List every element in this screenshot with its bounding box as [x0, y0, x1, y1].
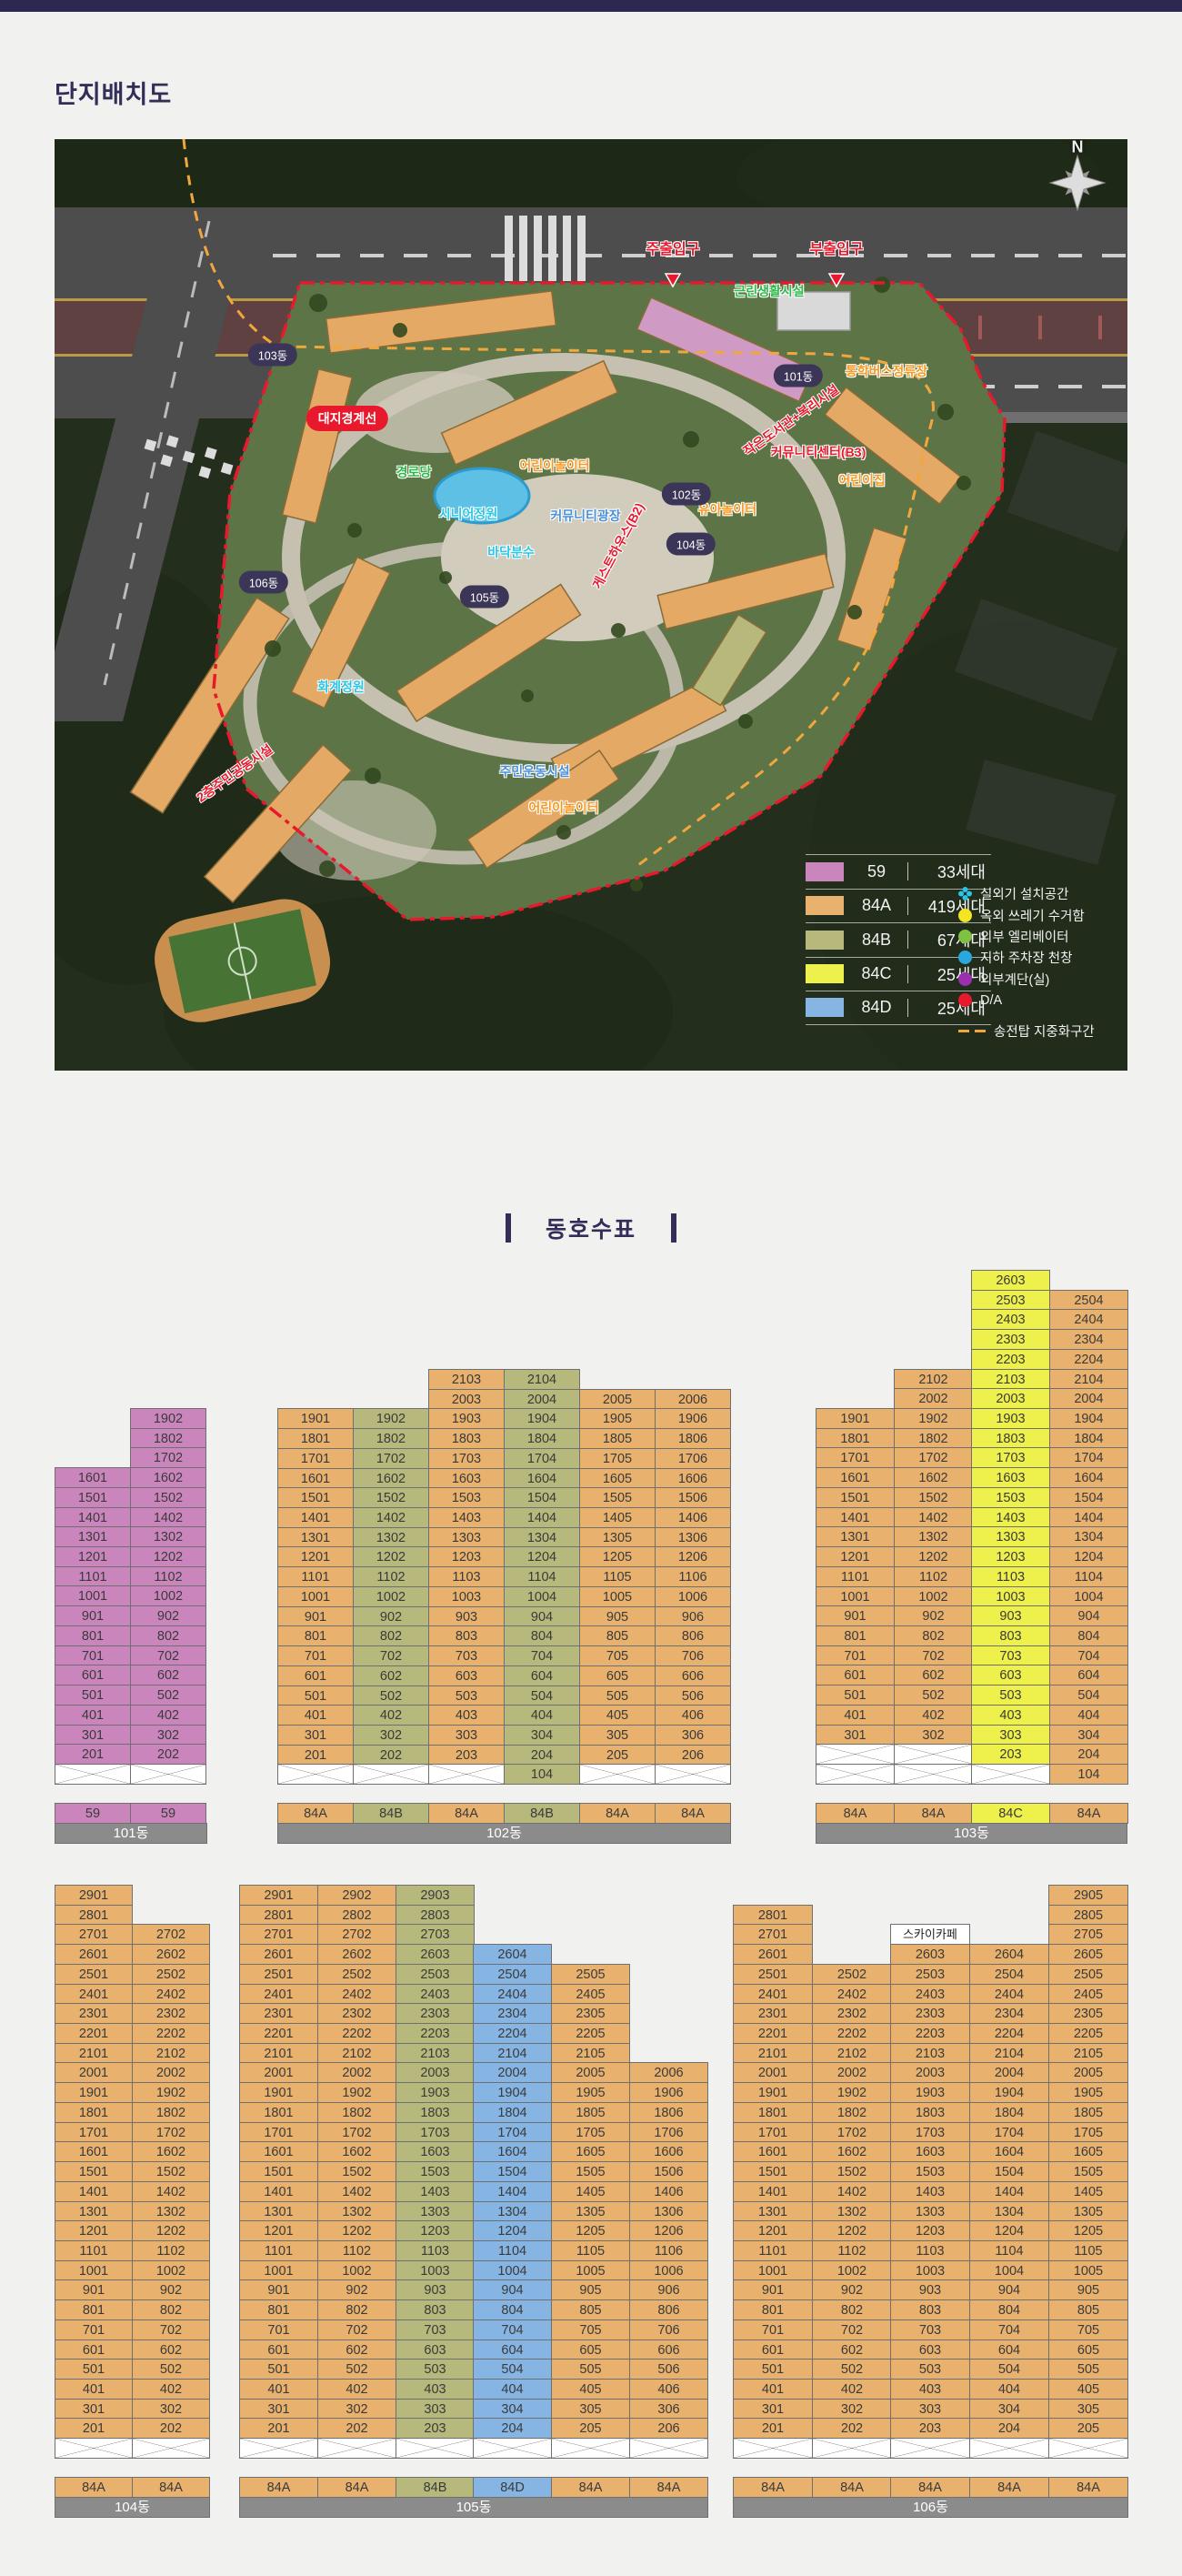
unit-cell: 1601 [733, 2141, 813, 2162]
unit-cell: 1101 [55, 2240, 133, 2261]
unit-cell: 2001 [239, 2062, 318, 2083]
unit-cell: 1504 [473, 2161, 552, 2182]
unit-cell: 1205 [551, 2220, 630, 2241]
unit-cell: 1202 [812, 2220, 892, 2241]
unit-cell: 1703 [396, 2122, 475, 2143]
piloti-cell [894, 1744, 973, 1765]
unit-cell: 604 [504, 1665, 580, 1686]
unit-cell: 2701 [733, 1924, 813, 1945]
marker-label: 외부계단(실) [980, 970, 1049, 989]
unit-cell: 204 [969, 2418, 1049, 2439]
unit-cell: 2103 [396, 2043, 475, 2064]
unit-cell: 502 [353, 1685, 429, 1706]
legend-divider [907, 897, 908, 915]
unit-cell: 2402 [317, 1984, 396, 2005]
unit-cell: 1204 [969, 2220, 1049, 2241]
unit-cell: 2404 [473, 1984, 552, 2005]
piloti-cell [816, 1744, 895, 1765]
unit-cell: 1202 [894, 1546, 973, 1567]
unit-cell: 303 [890, 2399, 970, 2420]
unit-cell: 602 [317, 2340, 396, 2360]
unit-cell: 2104 [1049, 1369, 1128, 1390]
unit-cell: 2102 [132, 2043, 210, 2064]
unit-cell: 1604 [504, 1468, 580, 1489]
legend-marker-row: 옥외 쓰레기 수거함 [958, 904, 1095, 925]
unit-cell: 1901 [55, 2082, 133, 2103]
unit-cell: 1903 [971, 1408, 1050, 1429]
unit-cell: 1904 [1049, 1408, 1128, 1429]
unit-cell: 204 [1049, 1744, 1128, 1765]
building-pill: 102동 [662, 483, 711, 506]
unit-cell: 1602 [894, 1467, 973, 1488]
unit-cell: 1601 [816, 1467, 895, 1488]
unit-cell: 702 [812, 2319, 892, 2340]
piloti-cell [629, 2438, 708, 2459]
unit-cell: 1402 [132, 2181, 210, 2202]
unit-cell: 605 [1048, 2340, 1128, 2360]
unit-cell: 603 [890, 2340, 970, 2360]
unit-cell: 1301 [239, 2201, 318, 2222]
unit-cell: 1603 [396, 2141, 475, 2162]
unit-cell: 1002 [317, 2260, 396, 2281]
unit-cell: 802 [317, 2299, 396, 2320]
unit-cell: 1004 [504, 1586, 580, 1607]
unit-cell: 904 [969, 2279, 1049, 2300]
unit-cell: 302 [130, 1725, 206, 1746]
unit-cell: 205 [579, 1745, 656, 1766]
unit-cell: 1404 [1049, 1507, 1128, 1528]
unit-cell: 604 [1049, 1665, 1128, 1685]
unit-cell: 1805 [579, 1428, 656, 1449]
unit-cell: 2303 [396, 2003, 475, 2024]
unit-cell: 2801 [733, 1905, 813, 1926]
unit-cell: 1705 [551, 2122, 630, 2143]
unit-cell: 1602 [317, 2141, 396, 2162]
unit-cell: 602 [812, 2340, 892, 2360]
unit-cell: 1003 [396, 2260, 475, 2281]
unit-cell: 801 [816, 1625, 895, 1646]
unit-cell: 302 [812, 2399, 892, 2420]
unit-cell: 505 [551, 2359, 630, 2380]
unit-cell: 2003 [396, 2062, 475, 2083]
unit-cell: 606 [655, 1665, 731, 1686]
unit-cell: 2504 [969, 1964, 1049, 1985]
unit-cell: 2005 [579, 1389, 656, 1410]
unit-cell: 2002 [132, 2062, 210, 2083]
unit-cell: 805 [551, 2299, 630, 2320]
unit-cell: 201 [277, 1745, 354, 1766]
unit-cell: 1501 [733, 2161, 813, 2182]
unit-cell: 2603 [890, 1944, 970, 1965]
unit-cell: 1302 [317, 2201, 396, 2222]
marker-label: 실외기 설치공간 [980, 884, 1068, 903]
unit-type-cell: 84D [473, 2477, 552, 2498]
unit-cell: 602 [353, 1665, 429, 1686]
map-label: 어린이놀이터 [519, 457, 589, 475]
unit-cell: 1905 [579, 1408, 656, 1429]
map-label: 주출입구 [646, 236, 700, 258]
unit-cell: 803 [971, 1625, 1050, 1646]
unit-cell: 504 [969, 2359, 1049, 2380]
unit-cell: 2004 [969, 2062, 1049, 2083]
map-label: 바닥분수 [487, 543, 535, 561]
unit-cell: 2304 [969, 2003, 1049, 2024]
unit-cell: 2304 [1049, 1329, 1128, 1350]
unit-cell: 1904 [504, 1408, 580, 1429]
unit-cell: 2701 [55, 1924, 133, 1945]
legend-divider [907, 965, 908, 983]
unit-cell: 702 [353, 1645, 429, 1666]
unit-cell: 203 [428, 1745, 505, 1766]
unit-cell: 1105 [1048, 2240, 1128, 2261]
map-label: 경로당 [396, 463, 432, 481]
unit-cell: 901 [277, 1606, 354, 1627]
unit-cell: 2202 [812, 2023, 892, 2044]
unit-cell: 603 [428, 1665, 505, 1686]
unit-type-cell: 84B [504, 1803, 580, 1824]
unit-cell: 2403 [971, 1309, 1050, 1330]
unit-cell: 1301 [816, 1526, 895, 1547]
unit-type-cell: 84A [551, 2477, 630, 2498]
unit-cell: 204 [504, 1745, 580, 1766]
unit-cell: 2901 [239, 1885, 318, 1906]
unit-cell: 301 [239, 2399, 318, 2420]
unit-cell: 1705 [1048, 2122, 1128, 2143]
unit-cell: 901 [816, 1605, 895, 1626]
unit-cell: 602 [894, 1665, 973, 1685]
legend-unit-type: 84C [856, 964, 897, 983]
legend-marker-row: 외부계단(실) [958, 969, 1095, 990]
unit-cell: 206 [629, 2418, 708, 2439]
legend-swatch [806, 964, 844, 983]
unit-cell: 1002 [894, 1586, 973, 1607]
unit-cell: 1002 [132, 2260, 210, 2281]
unit-cell: 1406 [629, 2181, 708, 2202]
unit-cell: 502 [132, 2359, 210, 2380]
unit-cell: 703 [971, 1645, 1050, 1666]
unit-cell: 2503 [890, 1964, 970, 1985]
unit-cell: 803 [428, 1625, 505, 1646]
unit-cell: 1301 [55, 1526, 131, 1547]
unit-cell: 1803 [890, 2102, 970, 2123]
unit-cell: 1103 [428, 1566, 505, 1587]
unit-cell: 806 [629, 2299, 708, 2320]
unit-cell: 1701 [816, 1447, 895, 1468]
unit-cell: 1805 [1048, 2102, 1128, 2123]
unit-cell: 1504 [1049, 1487, 1128, 1508]
unit-cell: 1303 [971, 1526, 1050, 1547]
unit-cell: 703 [396, 2319, 475, 2340]
unit-cell: 301 [55, 1725, 131, 1746]
unit-cell: 1106 [629, 2240, 708, 2261]
unit-cell: 1302 [132, 2201, 210, 2222]
unit-type-cell: 84A [812, 2477, 892, 2498]
unit-cell: 1803 [396, 2102, 475, 2123]
unit-cell: 2402 [812, 1984, 892, 2005]
unit-cell: 2305 [1048, 2003, 1128, 2024]
unit-cell: 1401 [816, 1507, 895, 1528]
map-label: 커뮤니티센터(B3) [771, 443, 866, 461]
piloti-cell [130, 1764, 206, 1785]
unit-cell: 1603 [890, 2141, 970, 2162]
unit-cell: 2103 [971, 1369, 1050, 1390]
unit-cell: 1304 [1049, 1526, 1128, 1547]
unit-cell: 1102 [317, 2240, 396, 2261]
piloti-cell [353, 1764, 429, 1785]
unit-cell: 1402 [812, 2181, 892, 2202]
unit-cell: 1503 [428, 1487, 505, 1508]
piloti-cell [579, 1764, 656, 1785]
map-label: 주민운동시설 [499, 762, 569, 780]
unit-cell: 2006 [629, 2062, 708, 2083]
unit-cell: 704 [473, 2319, 552, 2340]
unit-cell: 601 [733, 2340, 813, 2360]
unit-cell: 2103 [890, 2043, 970, 2064]
unit-cell: 1201 [277, 1546, 354, 1567]
unit-cell: 404 [504, 1705, 580, 1726]
unit-type-cell: 59 [55, 1803, 131, 1824]
unit-cell: 804 [969, 2299, 1049, 2320]
marker-label: 지하 주차장 천창 [980, 948, 1072, 967]
unit-cell: 2702 [132, 1924, 210, 1945]
dongho-table-102동: 1901180117011601150114011301120111011001… [277, 1369, 732, 1846]
unit-cell: 604 [473, 2340, 552, 2360]
unit-cell: 2601 [239, 1944, 318, 1965]
unit-cell: 1902 [317, 2082, 396, 2103]
unit-cell: 1202 [317, 2220, 396, 2241]
unit-cell: 2102 [317, 2043, 396, 2064]
unit-type-cell: 84A [894, 1803, 973, 1824]
unit-cell: 1102 [353, 1566, 429, 1587]
unit-cell: 1704 [1049, 1447, 1128, 1468]
unit-cell: 1103 [396, 2240, 475, 2261]
unit-cell: 2404 [969, 1984, 1049, 2005]
unit-cell: 2404 [1049, 1309, 1128, 1330]
legend-marker-row: 외부 엘리베이터 [958, 926, 1095, 947]
unit-cell: 2104 [504, 1369, 580, 1390]
unit-cell: 801 [277, 1625, 354, 1646]
unit-cell: 701 [55, 1645, 131, 1666]
unit-cell: 2805 [1048, 1905, 1128, 1926]
unit-cell: 404 [1049, 1705, 1128, 1726]
unit-cell: 1605 [579, 1468, 656, 1489]
unit-cell: 2202 [132, 2023, 210, 2044]
unit-cell: 503 [396, 2359, 475, 2380]
unit-cell: 2203 [971, 1349, 1050, 1370]
unit-cell: 2601 [733, 1944, 813, 1965]
unit-cell: 903 [890, 2279, 970, 2300]
legend-unit-type: 84D [856, 998, 897, 1017]
unit-cell: 501 [277, 1685, 354, 1706]
unit-cell: 801 [55, 2299, 133, 2320]
unit-cell: 2003 [890, 2062, 970, 2083]
map-label: 부출입구 [810, 236, 864, 258]
unit-cell: 1704 [969, 2122, 1049, 2143]
unit-cell: 802 [812, 2299, 892, 2320]
unit-cell: 702 [317, 2319, 396, 2340]
unit-cell: 1701 [55, 2122, 133, 2143]
unit-cell: 1004 [473, 2260, 552, 2281]
piloti-cell [816, 1764, 895, 1785]
unit-cell: 403 [971, 1705, 1050, 1726]
unit-cell: 1601 [55, 2141, 133, 2162]
unit-cell: 1104 [1049, 1566, 1128, 1587]
unit-cell: 1504 [504, 1487, 580, 1508]
unit-cell: 1001 [277, 1586, 354, 1607]
unit-cell: 2903 [396, 1885, 475, 1906]
unit-cell: 1404 [969, 2181, 1049, 2202]
unit-cell: 903 [428, 1606, 505, 1627]
unit-cell: 304 [1049, 1725, 1128, 1746]
unit-cell: 804 [504, 1625, 580, 1646]
unit-cell: 902 [894, 1605, 973, 1626]
unit-cell: 403 [428, 1705, 505, 1726]
unit-type-cell: 84A [629, 2477, 708, 2498]
unit-cell: 2702 [317, 1924, 396, 1945]
unit-cell: 1105 [579, 1566, 656, 1587]
unit-cell: 2103 [428, 1369, 505, 1390]
unit-type-cell: 84A [1048, 2477, 1128, 2498]
unit-cell: 401 [55, 2379, 133, 2400]
unit-cell: 1306 [629, 2201, 708, 2222]
unit-cell: 803 [890, 2299, 970, 2320]
unit-cell: 303 [971, 1725, 1050, 1746]
unit-cell: 1401 [733, 2181, 813, 2202]
unit-cell: 402 [130, 1705, 206, 1726]
unit-cell: 501 [55, 1685, 131, 1706]
unit-cell: 1802 [317, 2102, 396, 2123]
unit-cell: 2104 [473, 2043, 552, 2064]
unit-type-cell: 84A [132, 2477, 210, 2498]
unit-cell: 203 [890, 2418, 970, 2439]
unit-cell: 1202 [353, 1546, 429, 1567]
unit-cell: 1405 [551, 2181, 630, 2202]
header-bar-right [671, 1213, 676, 1243]
unit-cell: 1305 [1048, 2201, 1128, 2222]
unit-cell: 1401 [55, 2181, 133, 2202]
skycafe-cell: 스카이카페 [890, 1924, 970, 1945]
unit-cell: 2204 [969, 2023, 1049, 2044]
unit-cell: 601 [277, 1665, 354, 1686]
unit-cell: 401 [733, 2379, 813, 2400]
unit-cell: 1302 [812, 2201, 892, 2222]
building-name-bar: 103동 [816, 1823, 1127, 1844]
unit-type-cell: 84A [890, 2477, 970, 2498]
unit-cell: 2201 [55, 2023, 133, 2044]
building-name-bar: 102동 [277, 1823, 731, 1844]
unit-cell: 1605 [551, 2141, 630, 2162]
unit-cell: 1001 [816, 1586, 895, 1607]
unit-cell: 803 [396, 2299, 475, 2320]
unit-cell: 1705 [579, 1448, 656, 1469]
unit-cell: 1102 [812, 2240, 892, 2261]
unit-type-cell: 84B [396, 2477, 475, 2498]
unit-cell: 2504 [1049, 1290, 1128, 1311]
unit-cell: 306 [629, 2399, 708, 2420]
unit-cell: 1502 [812, 2161, 892, 2182]
unit-cell: 2603 [396, 1944, 475, 1965]
top-accent-bar [0, 0, 1182, 12]
unit-cell: 905 [1048, 2279, 1128, 2300]
unit-cell: 1801 [239, 2102, 318, 2123]
unit-cell: 904 [504, 1606, 580, 1627]
unit-cell: 1704 [504, 1448, 580, 1469]
unit-cell: 1806 [655, 1428, 731, 1449]
unit-cell: 805 [579, 1625, 656, 1646]
legend-marker-row: 실외기 설치공간 [958, 883, 1095, 904]
unit-cell: 202 [132, 2418, 210, 2439]
unit-cell: 1903 [396, 2082, 475, 2103]
unit-cell: 204 [473, 2418, 552, 2439]
unit-cell: 1704 [473, 2122, 552, 2143]
unit-cell: 1003 [428, 1586, 505, 1607]
unit-cell: 1106 [655, 1566, 731, 1587]
unit-cell: 1301 [277, 1527, 354, 1548]
piloti-cell [1048, 2438, 1128, 2459]
unit-cell: 2001 [55, 2062, 133, 2083]
map-label: 근린생활시설 [734, 282, 804, 300]
unit-cell: 1501 [55, 2161, 133, 2182]
unit-cell: 703 [890, 2319, 970, 2340]
unit-cell: 201 [733, 2418, 813, 2439]
unit-cell: 403 [890, 2379, 970, 2400]
unit-cell: 201 [239, 2418, 318, 2439]
unit-cell: 905 [551, 2279, 630, 2300]
unit-cell: 2004 [473, 2062, 552, 2083]
unit-cell: 802 [894, 1625, 973, 1646]
unit-type-cell: 84A [317, 2477, 396, 2498]
unit-cell: 1702 [317, 2122, 396, 2143]
unit-cell: 306 [655, 1725, 731, 1746]
unit-cell: 401 [277, 1705, 354, 1726]
unit-cell: 1906 [629, 2082, 708, 2103]
unit-cell: 2202 [317, 2023, 396, 2044]
unit-cell: 2301 [239, 2003, 318, 2024]
unit-cell: 1505 [1048, 2161, 1128, 2182]
unit-cell: 301 [733, 2399, 813, 2420]
unit-cell: 2204 [473, 2023, 552, 2044]
map-label: 어린이놀이터 [528, 799, 598, 817]
unit-cell: 403 [396, 2379, 475, 2400]
unit-cell: 606 [629, 2340, 708, 2360]
unit-cell: 1303 [396, 2201, 475, 2222]
unit-cell: 1104 [969, 2240, 1049, 2261]
building-name-bar: 106동 [733, 2497, 1128, 2518]
unit-cell: 2602 [317, 1944, 396, 1965]
unit-cell: 902 [132, 2279, 210, 2300]
unit-cell: 1403 [396, 2181, 475, 2202]
unit-cell: 404 [473, 2379, 552, 2400]
marker-dash-icon [958, 1030, 986, 1032]
unit-cell: 1904 [969, 2082, 1049, 2103]
unit-cell: 1202 [132, 2220, 210, 2241]
unit-cell: 702 [132, 2319, 210, 2340]
unit-cell: 1504 [969, 2161, 1049, 2182]
unit-cell: 1205 [1048, 2220, 1128, 2241]
unit-cell: 2801 [239, 1905, 318, 1926]
unit-cell: 206 [655, 1745, 731, 1766]
unit-cell: 801 [55, 1625, 131, 1646]
unit-cell: 1505 [579, 1487, 656, 1508]
unit-cell: 1805 [551, 2102, 630, 2123]
unit-cell: 1401 [55, 1507, 131, 1528]
unit-cell: 303 [396, 2399, 475, 2420]
unit-cell: 1501 [277, 1487, 354, 1508]
legend-marker-row: D/A [958, 990, 1095, 1011]
unit-cell: 1002 [130, 1585, 206, 1606]
unit-cell: 2401 [239, 1984, 318, 2005]
unit-cell: 406 [629, 2379, 708, 2400]
